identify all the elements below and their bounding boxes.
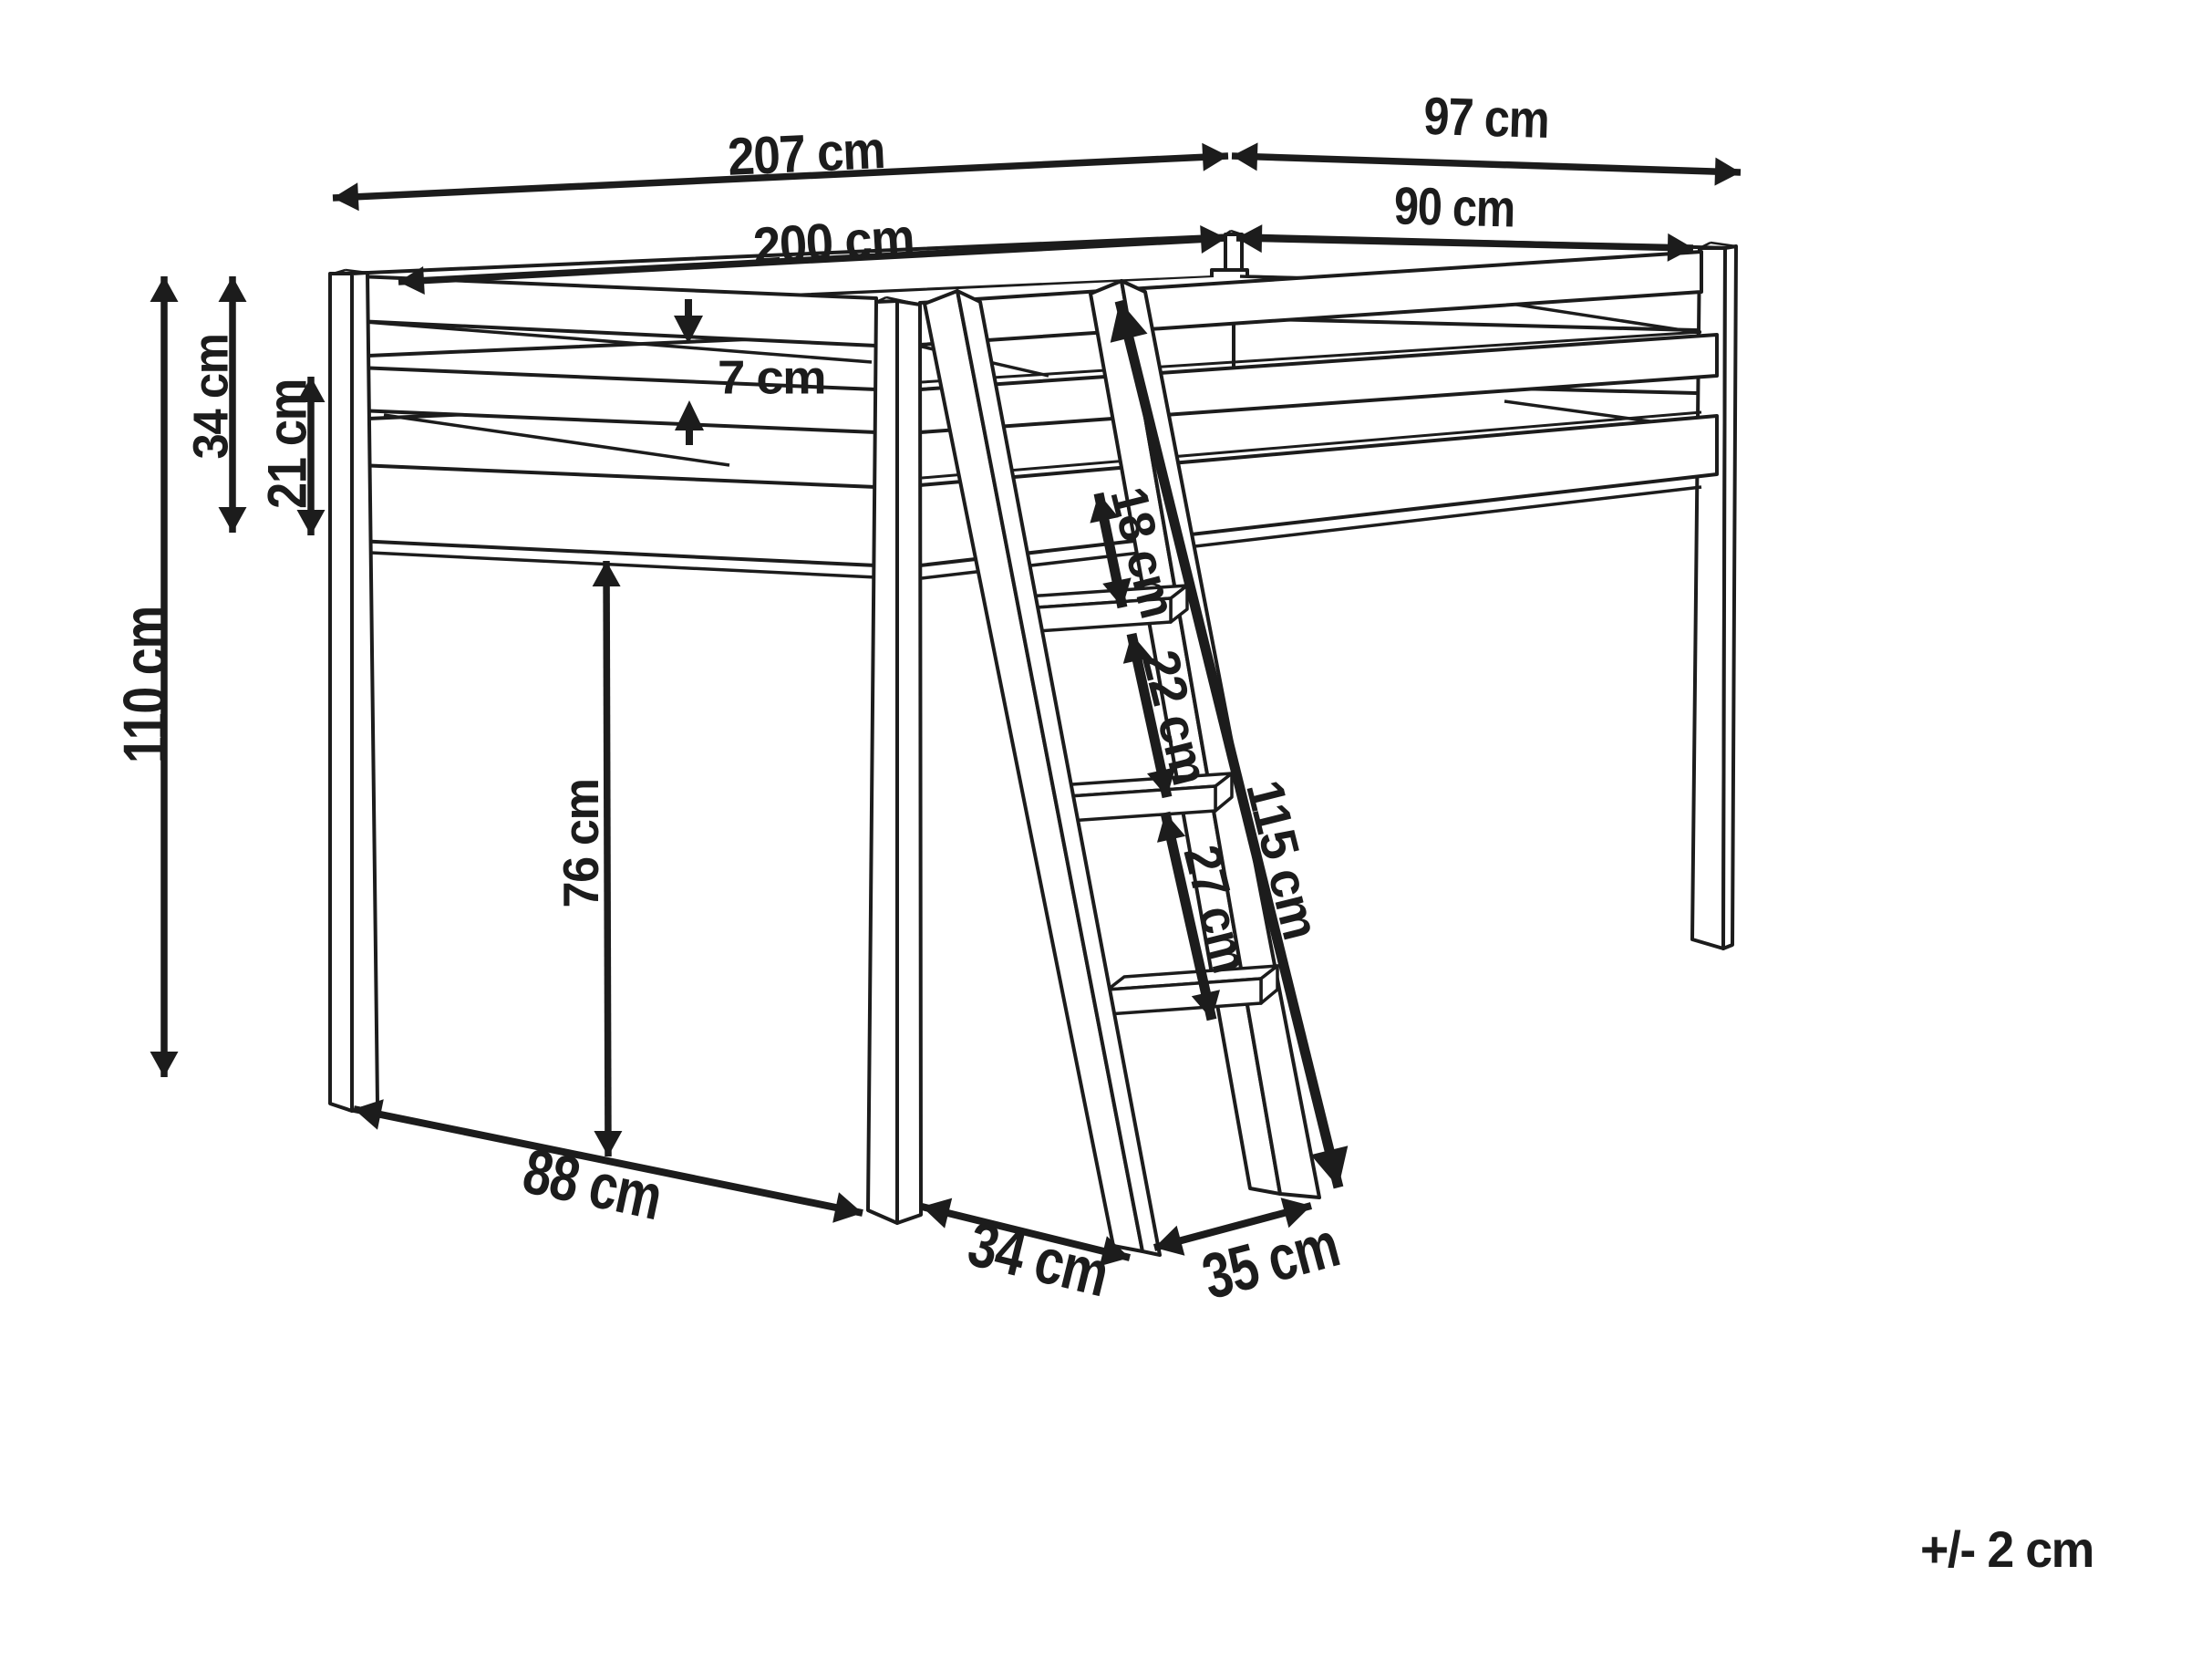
svg-text:+/- 2 cm: +/- 2 cm bbox=[1920, 1520, 2093, 1578]
svg-text:76 cm: 76 cm bbox=[553, 780, 609, 908]
svg-text:97 cm: 97 cm bbox=[1422, 87, 1549, 150]
svg-text:7 cm: 7 cm bbox=[718, 352, 825, 405]
svg-text:207 cm: 207 cm bbox=[727, 120, 886, 187]
svg-text:200 cm: 200 cm bbox=[751, 208, 915, 276]
svg-text:21 cm: 21 cm bbox=[257, 379, 318, 509]
svg-text:110 cm: 110 cm bbox=[110, 607, 180, 763]
svg-text:90 cm: 90 cm bbox=[1393, 176, 1515, 238]
svg-text:34 cm: 34 cm bbox=[183, 335, 238, 460]
